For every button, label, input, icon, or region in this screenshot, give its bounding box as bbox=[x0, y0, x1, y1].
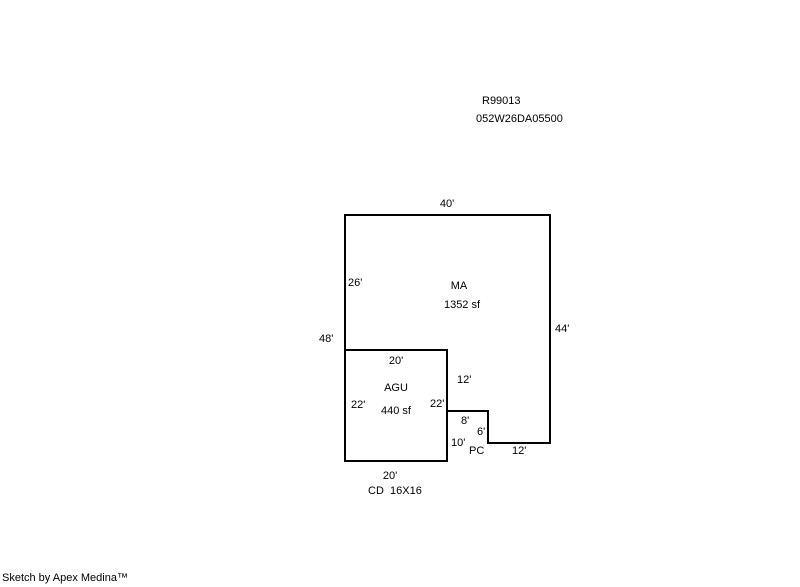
dimension-top-40: 40' bbox=[440, 198, 454, 211]
dimension-right-44: 44' bbox=[555, 323, 569, 336]
record-number: R99013 bbox=[482, 95, 521, 108]
parcel-number: 052W26DA05500 bbox=[476, 113, 563, 126]
dimension-bottom-right-12: 12' bbox=[512, 445, 526, 458]
dimension-agu-right-22: 22' bbox=[430, 398, 444, 411]
dimension-agu-left-22: 22' bbox=[351, 399, 365, 412]
dimension-step-top-8: 8' bbox=[461, 415, 469, 428]
sketch-credit: Sketch by Apex Medina™ bbox=[2, 572, 128, 585]
area-size-ma: 1352 sf bbox=[444, 299, 480, 312]
sketch-page: R99013 052W26DA05500 40' 26' 48' 44' MA … bbox=[0, 0, 800, 587]
area-code-agu: AGU bbox=[384, 382, 408, 395]
dimension-left-upper-26: 26' bbox=[348, 277, 362, 290]
dimension-agu-top-20: 20' bbox=[389, 355, 403, 368]
dimension-agu-bottom-20: 20' bbox=[383, 470, 397, 483]
area-code-cd: CD 16X16 bbox=[368, 485, 422, 498]
area-code-pc: PC bbox=[469, 445, 484, 458]
dimension-left-total-48: 48' bbox=[319, 333, 333, 346]
area-size-agu: 440 sf bbox=[381, 405, 411, 418]
area-code-ma: MA bbox=[451, 280, 468, 293]
floorplan-sketch bbox=[0, 0, 800, 587]
dimension-step-right-6: 6' bbox=[477, 426, 485, 439]
dimension-step-lower-10: 10' bbox=[451, 437, 465, 450]
dimension-step-upper-12: 12' bbox=[457, 374, 471, 387]
